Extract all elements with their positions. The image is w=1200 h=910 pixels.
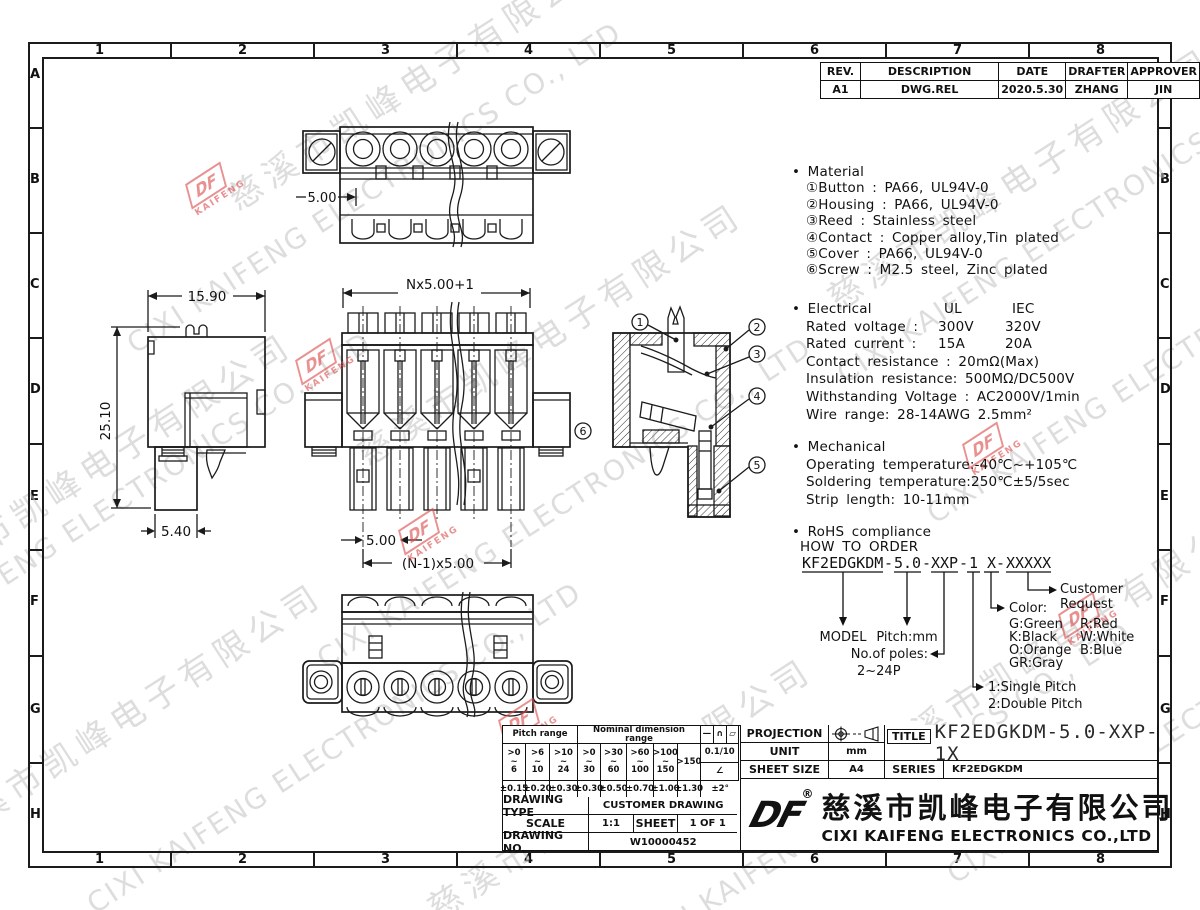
order-code-model: KF2EDGKDM [802,554,883,572]
order-code-sep: - [884,554,893,572]
scale-value: 1:1 [589,815,634,833]
front-view: 6 Nx5.00+1 5.00 [305,277,591,572]
electrical-col-ul: UL [944,301,962,319]
tolerance-table: Pitch range Nominal dimension range — ∩ … [502,725,740,797]
order-code-type: 1 [969,554,978,572]
drawing-info-table: DRAWING TYPE CUSTOMER DRAWING SCALE 1:1 … [502,797,740,851]
dim-5-40: 5.40 [141,514,211,540]
callout-6: 6 [575,423,591,439]
rohs-title: • RoHS compliance [792,525,931,540]
rev-header: DATE [999,63,1066,81]
flatness-value: 0.1/10 [701,744,738,763]
tolerance-value: ±2° [701,781,739,798]
title-cell: TITLE KF2EDGKDM-5.0-XXP-1X [885,725,1159,761]
dim-span: (N-1)x5.00 [363,549,511,572]
mechanical-line: Operating temperature:-40℃~+105℃ [792,457,1077,475]
nominal-range-cell: >60~100 [627,744,654,781]
pitch-range-cell: >6~10 [526,744,550,781]
first-angle-projection-icon [831,726,883,742]
material-section: • Material ①Button : PA66, UL94V-0 ②Hous… [792,164,1059,279]
straightness-icon: — [701,726,714,743]
electrical-line: Withstanding Voltage : AC2000V/1min [792,389,1080,407]
rev-value: ZHANG [1066,81,1128,99]
dim-15-90: 15.90 [148,289,265,332]
series-label: SERIES [885,761,944,779]
sheet-size-value: A4 [829,761,885,779]
how-to-order-heading: HOW TO ORDER [792,540,931,555]
svg-text:5: 5 [754,459,761,472]
svg-text:5.00: 5.00 [366,533,396,549]
rev-value: JIN [1128,81,1200,99]
order-label-customer1: Customer [1060,582,1124,597]
material-item: ⑤Cover : PA66, UL94V-0 [792,246,1059,262]
nominal-range-cell: >0~30 [578,744,601,781]
projection-label: PROJECTION [741,725,829,743]
flatness-angle-cell: 0.1/10 ∠ [701,744,739,781]
svg-text:5.40: 5.40 [161,524,191,540]
drawing-no-value: W10000452 [589,833,737,851]
material-item: ①Button : PA66, UL94V-0 [792,180,1059,196]
svg-text:25.10: 25.10 [98,402,114,441]
material-item: ②Housing : PA66, UL94V-0 [792,197,1059,213]
electrical-line: Wire range: 28-14AWG 2.5mm² [792,407,1080,425]
angle-icon: ∠ [701,763,738,781]
tolerance-value: ±0.50 [601,781,627,798]
svg-text:Nx5.00+1: Nx5.00+1 [406,277,474,293]
order-label-type1: 1:Single Pitch [988,680,1076,695]
dim-25-10: 25.10 [98,327,180,508]
rev-value: DWG.REL [860,81,998,99]
company-logo: DF [745,795,807,836]
svg-text:6: 6 [580,425,587,438]
order-code-sep: - [959,554,968,572]
ordering-diagram: KF2EDGKDM - 5.0 - XXP - 1 X - XXXXX [775,550,1160,722]
top-front-view: 5.00 [296,122,570,247]
drawing-sheet: 慈溪市凯峰电子有限公司 CIXI KAIFENG ELECTRONICS CO.… [0,0,1200,910]
over-range-cell: >150 [678,744,701,781]
revision-header-row: REV. DESCRIPTION DATE DRAFTER APPROVER [821,63,1200,81]
order-label-pitch: Pitch:mm [876,630,937,645]
title-label: TITLE [887,729,931,744]
drawing-type-label: DRAWING TYPE [503,797,589,815]
tolerance-value: ±0.70 [627,781,654,798]
pitch-range-cell: >10~24 [550,744,578,781]
electrical-title: • Electrical UL IEC [792,301,1080,319]
electrical-line: Insulation resistance: 500MΩ/DC500V [792,371,1080,389]
order-code-sep: - [996,554,1005,572]
rev-header: DRAFTER [1066,63,1128,81]
material-item: ③Reed : Stainless steel [792,213,1059,229]
order-color-option: B:Blue [1080,643,1122,658]
dim-total-width: Nx5.00+1 [343,277,530,308]
symbols-header: — ∩ ▱ [701,726,739,744]
sheet-size-label: SHEET SIZE [741,761,829,779]
series-value: KF2EDGKDM [944,761,1159,779]
rev-value: A1 [821,81,861,99]
sheet-label: SHEET [634,815,678,833]
dim-5-00-top: 5.00 [296,188,356,206]
mechanical-line: Strip length: 10-11mm [792,492,1077,510]
revision-table: REV. DESCRIPTION DATE DRAFTER APPROVER A… [820,62,1200,99]
material-title: • Material [792,164,1059,180]
svg-text:3: 3 [754,348,761,361]
material-item: ④Contact : Copper alloy,Tin plated [792,230,1059,246]
arc-icon: ∩ [714,726,727,743]
order-code-poles: XXP [931,554,958,572]
svg-text:15.90: 15.90 [188,289,227,305]
mechanical-line: Soldering temperature:250℃±5/5sec [792,474,1077,492]
electrical-section: • Electrical UL IEC Rated voltage : 300V… [792,301,1080,424]
revision-row: A1 DWG.REL 2020.5.30 ZHANG JIN [821,81,1200,99]
tolerance-value: ±1.30 [678,781,701,798]
projection-symbol [829,725,885,743]
order-label-customer2: Request [1060,597,1113,612]
rev-value: 2020.5.30 [999,81,1066,99]
pitch-range-header: Pitch range [503,726,578,744]
drawing-title: KF2EDGKDM-5.0-XXP-1X [935,721,1159,765]
order-code-custom: XXXXX [1006,554,1051,572]
rev-header: DESCRIPTION [860,63,998,81]
rev-header: REV. [821,63,861,81]
mechanical-section: • Mechanical Operating temperature:-40℃~… [792,439,1077,509]
dim-pitch: 5.00 [341,533,422,549]
order-color-option: GR:Gray [1009,656,1063,671]
unit-label: UNIT [741,743,829,761]
mechanical-title: • Mechanical [792,439,1077,457]
order-label-type2: 2:Double Pitch [988,697,1083,712]
title-block: PROJECTION UNIT mm SHEET SIZE A4 TITLE K… [740,725,1158,851]
pitch-range-cell: >0~6 [503,744,526,781]
svg-text:1: 1 [637,316,644,329]
side-view: 15.90 25.10 5.40 [98,289,265,540]
drawing-type-value: CUSTOMER DRAWING [589,797,737,815]
svg-text:2: 2 [754,321,761,334]
rev-header: APPROVER [1128,63,1200,81]
order-code-pitch: 5.0 [894,554,921,572]
order-code-sep: - [922,554,931,572]
flatness-icon: ▱ [727,726,739,743]
material-item: ⑥Screw : M2.5 steel, Zinc plated [792,262,1059,278]
rohs-section: • RoHS compliance HOW TO ORDER [792,525,931,555]
order-label-poles: No.of poles: [851,647,928,662]
company-name-cn: 慈溪市凯峰电子有限公司 [821,785,1173,827]
electrical-line: Contact resistance : 20mΩ(Max) [792,354,1080,372]
electrical-col-iec: IEC [1012,301,1035,319]
company-area: DF ® 慈溪市凯峰电子有限公司 CIXI KAIFENG ELECTRONIC… [741,779,1159,851]
order-label-model: MODEL [820,630,868,645]
bottom-view [303,592,572,717]
electrical-row: Rated current : 15A 20A [792,336,1080,354]
nominal-range-cell: >30~60 [601,744,627,781]
nominal-range-cell: >100~150 [654,744,678,781]
sheet-value: 1 OF 1 [678,815,737,833]
order-label-poles-range: 2~24P [857,664,901,679]
svg-text:5.00: 5.00 [308,191,337,206]
electrical-row: Rated voltage : 300V 320V [792,319,1080,337]
company-name-en: CIXI KAIFENG ELECTRONICS CO.,LTD [821,827,1173,845]
svg-text:4: 4 [754,390,761,403]
drawing-no-label: DRAWING NO. [503,833,589,851]
nominal-range-header: Nominal dimension range [578,726,701,744]
svg-text:(N-1)x5.00: (N-1)x5.00 [402,556,474,572]
section-view: 1 2 3 4 5 [613,307,765,517]
order-code-color: X [987,554,996,572]
order-label-color: Color: [1009,601,1047,616]
unit-value: mm [829,743,885,761]
